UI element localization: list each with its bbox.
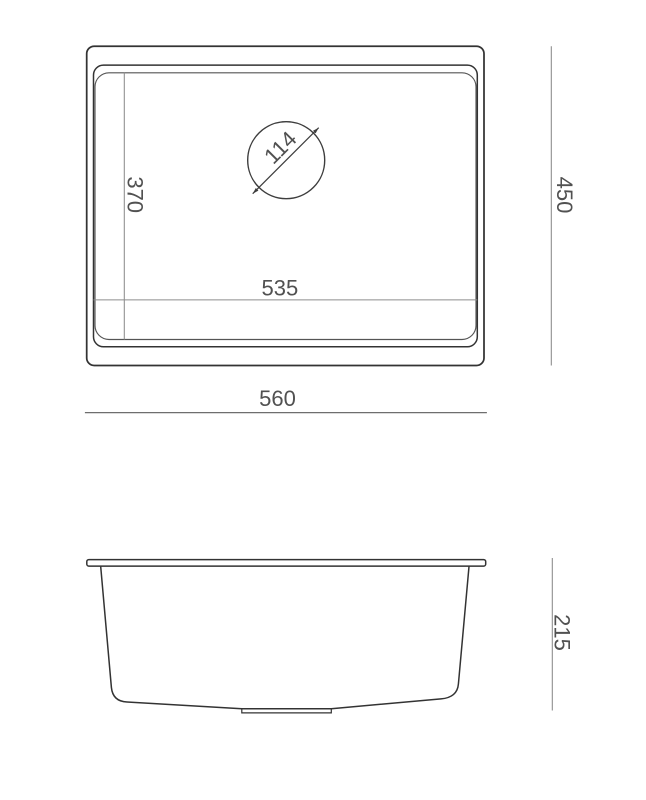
- svg-text:450: 450: [552, 177, 577, 214]
- svg-text:560: 560: [259, 386, 296, 411]
- svg-text:215: 215: [550, 614, 575, 651]
- svg-text:535: 535: [262, 276, 299, 301]
- svg-text:370: 370: [123, 176, 148, 213]
